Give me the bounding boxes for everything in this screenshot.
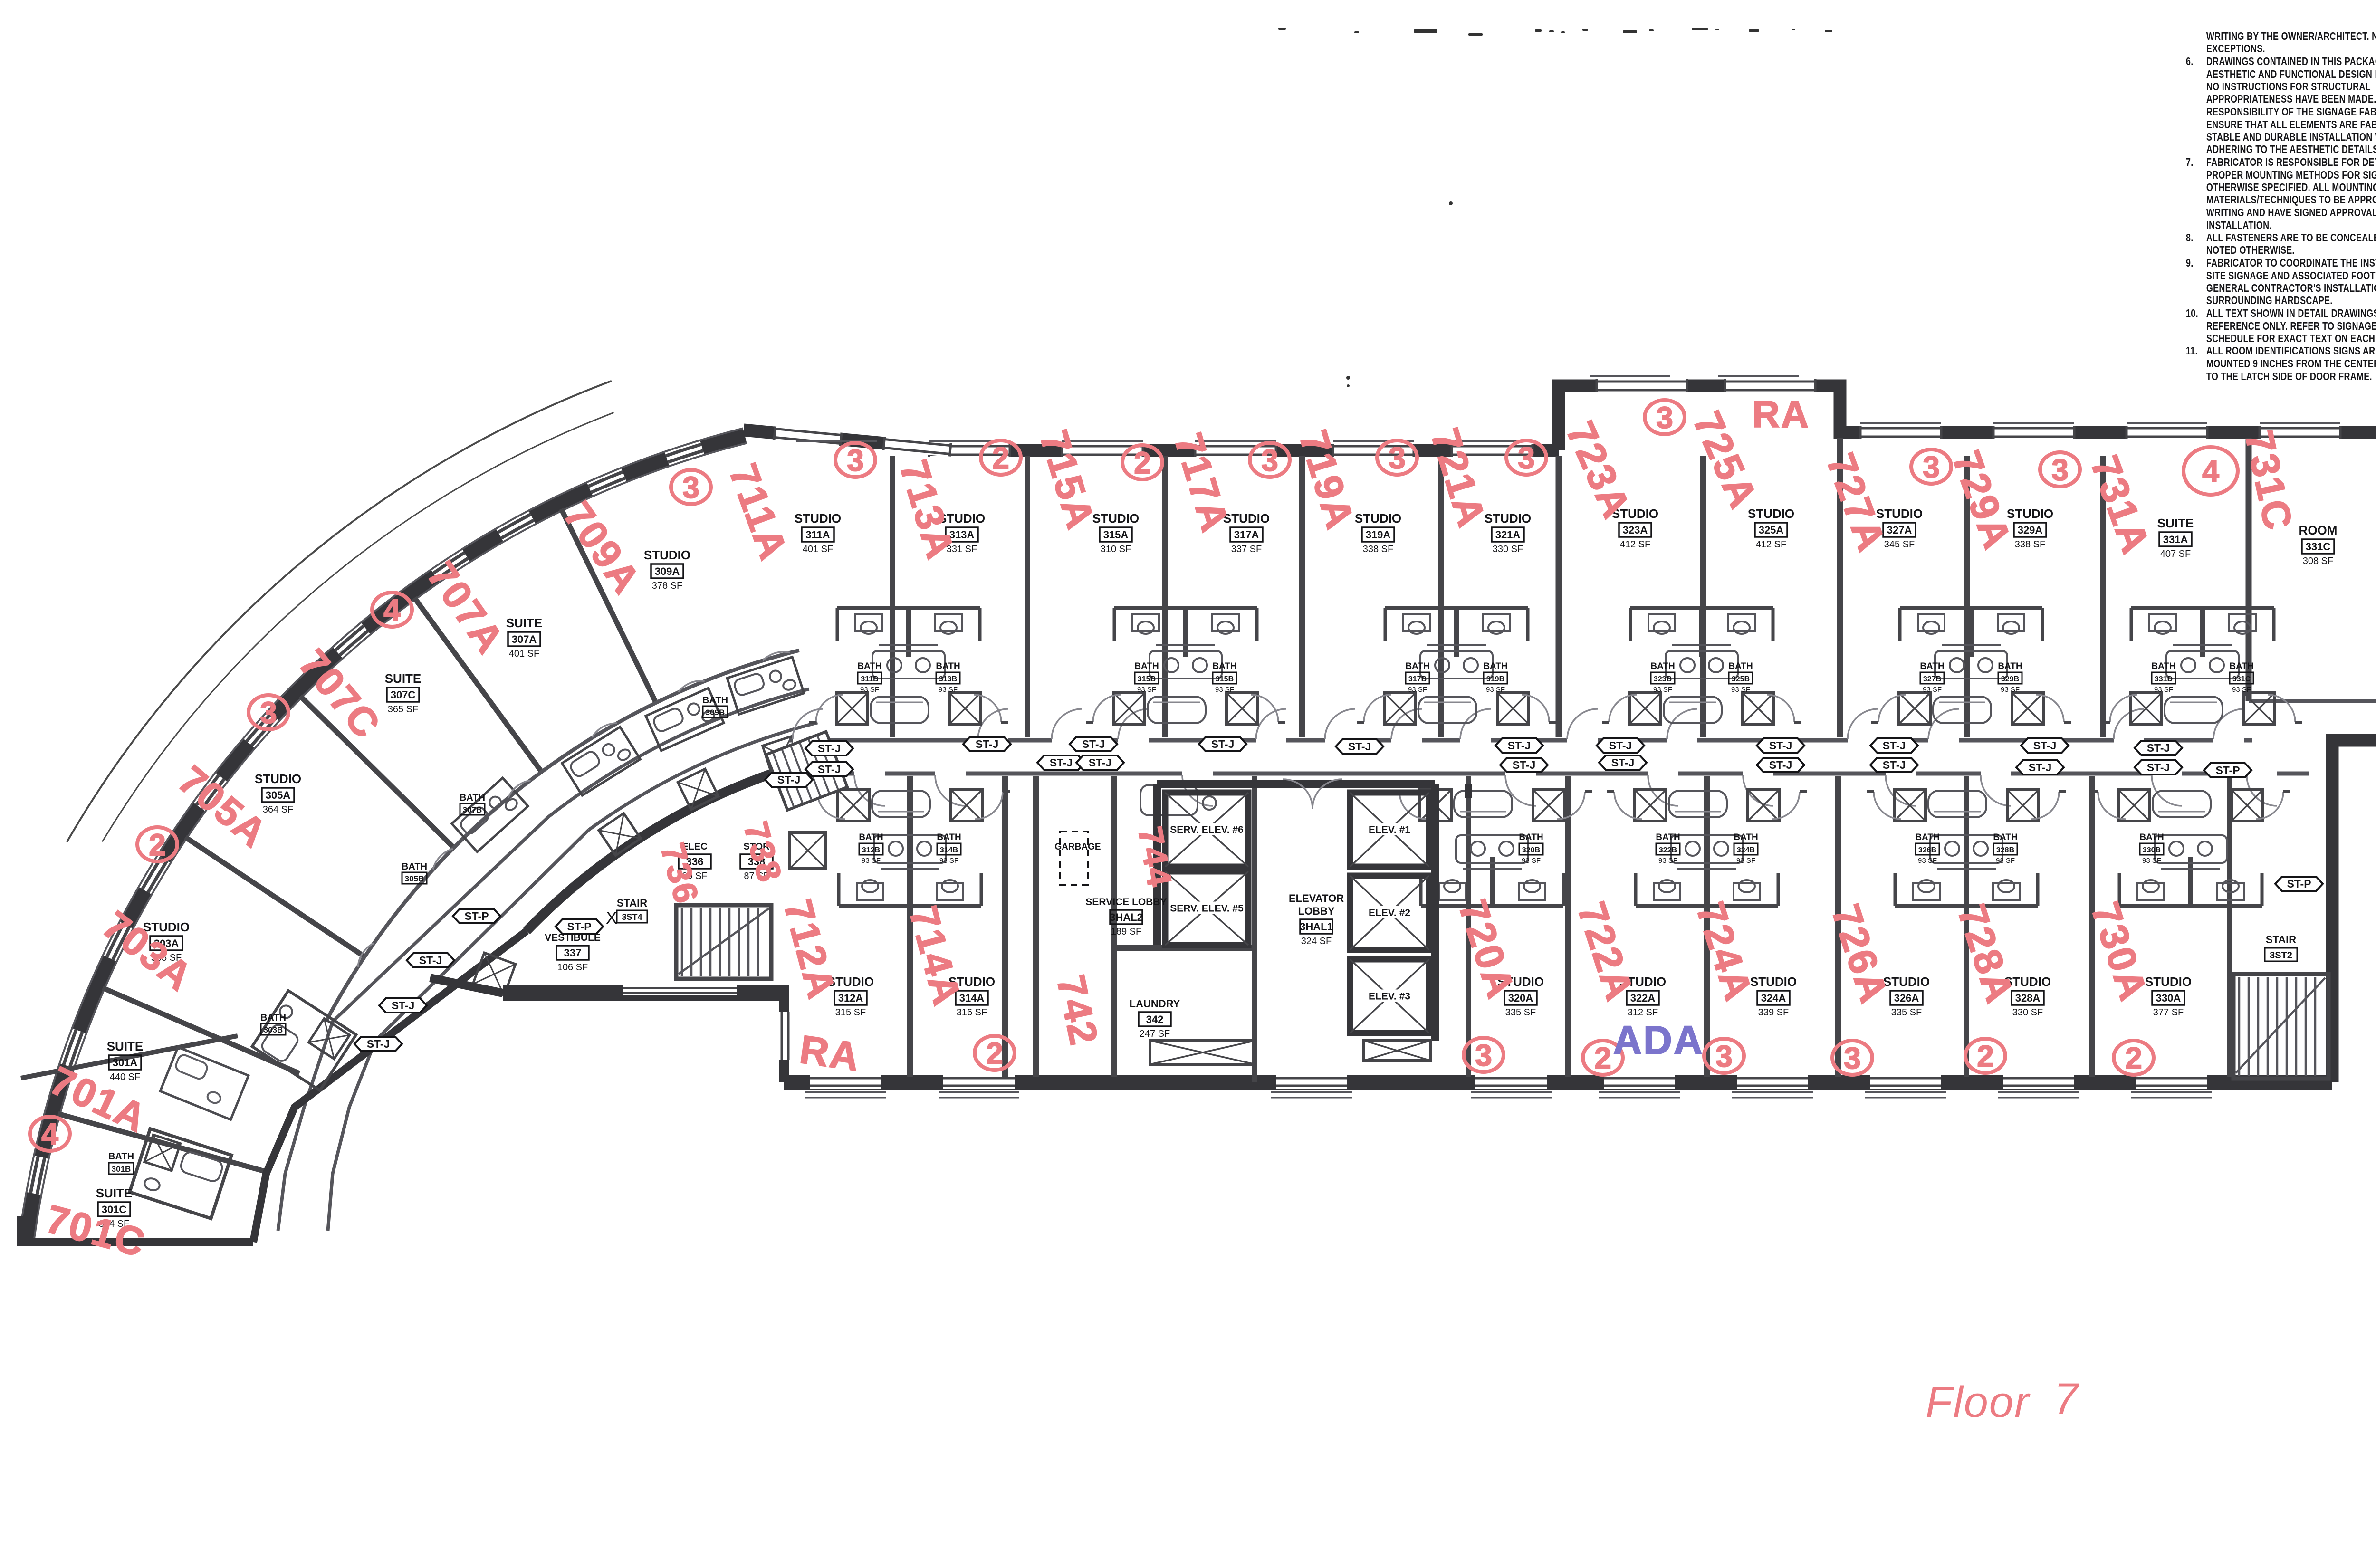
svg-text:BATH: BATH xyxy=(936,661,960,671)
svg-text:ENSURE THAT ALL ELEMENTS ARE F: ENSURE THAT ALL ELEMENTS ARE FABRICATE xyxy=(2206,119,2376,131)
svg-text:315B: 315B xyxy=(1216,675,1234,683)
svg-text:93 SF: 93 SF xyxy=(1923,686,1942,694)
svg-text:LOBBY: LOBBY xyxy=(1298,905,1335,917)
svg-text:315A: 315A xyxy=(1103,529,1129,541)
svg-text:2: 2 xyxy=(1134,446,1151,480)
svg-text:93 SF: 93 SF xyxy=(862,857,881,865)
svg-text:STAIR: STAIR xyxy=(2266,934,2296,946)
svg-text:NO INSTRUCTIONS FOR STRUCTURAL: NO INSTRUCTIONS FOR STRUCTURAL xyxy=(2206,81,2371,93)
svg-text:ELEVATOR: ELEVATOR xyxy=(1289,892,1344,904)
svg-text:ELEV. #1: ELEV. #1 xyxy=(1369,824,1410,835)
svg-text:OTHERWISE SPECIFIED. ALL MOUN: OTHERWISE SPECIFIED. ALL MOUNTING xyxy=(2206,182,2376,194)
svg-text:STUDIO: STUDIO xyxy=(2007,507,2053,521)
svg-text:325B: 325B xyxy=(1732,675,1750,683)
svg-text:312B: 312B xyxy=(862,846,880,854)
svg-text:93 SF: 93 SF xyxy=(1658,857,1677,865)
svg-text:SUITE: SUITE xyxy=(506,616,543,630)
svg-text:BATH: BATH xyxy=(702,695,728,706)
svg-text:106 SF: 106 SF xyxy=(557,962,588,973)
svg-text:2: 2 xyxy=(2125,1041,2142,1075)
svg-text:331C: 331C xyxy=(2306,541,2331,553)
svg-text:ALL FASTENERS ARE TO BE CONCEA: ALL FASTENERS ARE TO BE CONCEALED UNLE. xyxy=(2206,232,2376,244)
svg-text:330A: 330A xyxy=(2156,992,2181,1004)
svg-text:3: 3 xyxy=(1923,450,1940,484)
svg-text:AESTHETIC AND FUNCTIONAL DESIG: AESTHETIC AND FUNCTIONAL DESIGN INTENT xyxy=(2206,68,2376,81)
svg-text:328B: 328B xyxy=(1996,846,2014,854)
svg-text:2: 2 xyxy=(149,828,166,862)
svg-text:BATH: BATH xyxy=(1650,661,1675,671)
svg-text:4: 4 xyxy=(41,1117,58,1151)
svg-text:9.: 9. xyxy=(2186,257,2194,269)
svg-text:3: 3 xyxy=(1261,443,1278,478)
svg-text:BATH: BATH xyxy=(402,861,427,872)
svg-text:93 SF: 93 SF xyxy=(1918,857,1937,865)
svg-text:SERV. ELEV. #6: SERV. ELEV. #6 xyxy=(1170,824,1244,835)
svg-text:3HAL2: 3HAL2 xyxy=(1110,911,1143,923)
svg-text:338 SF: 338 SF xyxy=(1363,544,1393,555)
svg-text:337: 337 xyxy=(564,947,582,959)
svg-text:93 SF: 93 SF xyxy=(1215,686,1234,694)
svg-text:93 SF: 93 SF xyxy=(2001,686,2020,694)
svg-text:BATH: BATH xyxy=(1405,661,1429,671)
svg-text:378 SF: 378 SF xyxy=(652,581,682,591)
svg-text:313B: 313B xyxy=(939,675,957,683)
svg-text:STABLE AND DURABLE INSTALLATIO: STABLE AND DURABLE INSTALLATION WHILE xyxy=(2206,131,2376,143)
svg-text:3: 3 xyxy=(1844,1041,1861,1075)
svg-text:93 SF: 93 SF xyxy=(939,686,958,694)
svg-text:93 SF: 93 SF xyxy=(2232,686,2251,694)
svg-text:440 SF: 440 SF xyxy=(110,1072,140,1082)
svg-text:3ST2: 3ST2 xyxy=(2270,950,2292,961)
svg-text:BATH: BATH xyxy=(1915,832,1939,842)
svg-text:ELEV. #2: ELEV. #2 xyxy=(1369,908,1410,918)
svg-text:3: 3 xyxy=(1715,1039,1733,1073)
svg-text:BATH: BATH xyxy=(1734,832,1758,842)
svg-text:311A: 311A xyxy=(805,529,830,541)
svg-text:93 SF: 93 SF xyxy=(2154,686,2173,694)
svg-text:GENERAL CONTRACTOR'S INSTALLAT: GENERAL CONTRACTOR'S INSTALLATION OF T xyxy=(2206,282,2376,295)
svg-text:301A: 301A xyxy=(113,1057,138,1069)
svg-text:BATH: BATH xyxy=(1920,661,1944,671)
svg-text:189 SF: 189 SF xyxy=(1111,927,1141,937)
svg-text:315 SF: 315 SF xyxy=(835,1007,866,1018)
svg-text:310 SF: 310 SF xyxy=(1101,544,1131,555)
svg-text:301B: 301B xyxy=(112,1165,131,1174)
svg-text:RA: RA xyxy=(797,1027,863,1080)
svg-text:330 SF: 330 SF xyxy=(2012,1007,2043,1018)
svg-text:WRITING BY THE OWNER/ARCHITECT: WRITING BY THE OWNER/ARCHITECT. NO xyxy=(2206,30,2376,43)
svg-text:BATH: BATH xyxy=(1212,661,1236,671)
svg-text:3ST4: 3ST4 xyxy=(622,912,642,922)
svg-text:247 SF: 247 SF xyxy=(1140,1029,1170,1039)
svg-text:ALL ROOM IDENTIFICATIONS SIGNS: ALL ROOM IDENTIFICATIONS SIGNS ARE TO BI xyxy=(2206,345,2376,357)
svg-text:303B: 303B xyxy=(264,1025,283,1034)
svg-text:335 SF: 335 SF xyxy=(1891,1007,1922,1018)
svg-text:ADA: ADA xyxy=(1613,1018,1704,1062)
svg-text:401 SF: 401 SF xyxy=(509,649,539,659)
svg-text:323B: 323B xyxy=(1654,675,1672,683)
svg-text:PROPER MOUNTING METHODS FOR SI: PROPER MOUNTING METHODS FOR SIGNS UI xyxy=(2206,169,2376,182)
svg-text:SERVICE LOBBY: SERVICE LOBBY xyxy=(1085,897,1167,908)
svg-text:3: 3 xyxy=(682,470,699,505)
svg-text:311B: 311B xyxy=(861,675,878,683)
svg-text:2: 2 xyxy=(1594,1041,1611,1075)
svg-text:BATH: BATH xyxy=(2229,661,2253,671)
svg-text:324B: 324B xyxy=(1737,846,1755,854)
svg-text:309B: 309B xyxy=(706,708,725,717)
svg-text:319B: 319B xyxy=(1486,675,1504,683)
svg-text:11.: 11. xyxy=(2186,345,2198,357)
svg-text:93 SF: 93 SF xyxy=(1408,686,1427,694)
svg-text:BATH: BATH xyxy=(859,832,883,842)
svg-text:REFERENCE ONLY. REFER TO SIGN: REFERENCE ONLY. REFER TO SIGNAGE MESSA xyxy=(2206,320,2376,333)
svg-text:BATH: BATH xyxy=(1998,661,2022,671)
svg-text:APPROPRIATENESS HAVE BEEN MADE: APPROPRIATENESS HAVE BEEN MADE. IT IS T xyxy=(2206,93,2376,105)
svg-text:308 SF: 308 SF xyxy=(2303,556,2333,566)
svg-text:320B: 320B xyxy=(1522,846,1540,854)
svg-text:335 SF: 335 SF xyxy=(1505,1007,1536,1018)
svg-text:MOUNTED 9 INCHES FROM THE CENT: MOUNTED 9 INCHES FROM THE CENTER OF T xyxy=(2206,358,2376,370)
svg-text:BATH: BATH xyxy=(1519,832,1543,842)
svg-text:337 SF: 337 SF xyxy=(1231,544,1262,555)
svg-text:319A: 319A xyxy=(1366,529,1391,541)
svg-text:327B: 327B xyxy=(1923,675,1941,683)
svg-text:6.: 6. xyxy=(2186,56,2194,68)
svg-text:326B: 326B xyxy=(1918,846,1936,854)
svg-text:STAIR: STAIR xyxy=(617,897,647,909)
svg-text:4: 4 xyxy=(2202,454,2219,488)
svg-text:3: 3 xyxy=(1518,441,1535,475)
svg-text:BATH: BATH xyxy=(857,661,881,671)
svg-text:STUDIO: STUDIO xyxy=(255,772,301,786)
svg-text:LAUNDRY: LAUNDRY xyxy=(1130,998,1180,1010)
svg-text:10.: 10. xyxy=(2186,307,2198,320)
svg-text:93 SF: 93 SF xyxy=(1653,686,1672,694)
svg-text:331D: 331D xyxy=(2155,675,2173,683)
svg-text:STUDIO: STUDIO xyxy=(795,511,841,526)
svg-text:314B: 314B xyxy=(940,846,958,854)
svg-text:326A: 326A xyxy=(1894,992,1919,1004)
svg-text:3: 3 xyxy=(1389,441,1406,475)
svg-text:329B: 329B xyxy=(2001,675,2019,683)
svg-text:3: 3 xyxy=(260,696,277,730)
svg-text:3: 3 xyxy=(847,443,864,478)
svg-text:FABRICATOR IS RESPONSIBLE FOR: FABRICATOR IS RESPONSIBLE FOR DETERMIN. xyxy=(2206,156,2376,169)
svg-text:INSTALLATION.: INSTALLATION. xyxy=(2206,220,2272,232)
svg-text:3: 3 xyxy=(1475,1038,1492,1072)
svg-text:317B: 317B xyxy=(1408,675,1427,683)
svg-text:93 SF: 93 SF xyxy=(1137,686,1156,694)
svg-text:7: 7 xyxy=(2054,1375,2079,1423)
svg-text:WRITING AND HAVE SIGNED APPROV: WRITING AND HAVE SIGNED APPROVAL PRIO xyxy=(2206,207,2376,219)
svg-text:324A: 324A xyxy=(1761,992,1786,1004)
svg-text:BATH: BATH xyxy=(2151,661,2175,671)
svg-text:BATH: BATH xyxy=(108,1151,134,1162)
svg-text:316 SF: 316 SF xyxy=(957,1007,987,1018)
svg-text:325A: 325A xyxy=(1759,524,1784,536)
svg-text:322B: 322B xyxy=(1659,846,1677,854)
svg-text:2: 2 xyxy=(1977,1039,1994,1073)
svg-text:93 SF: 93 SF xyxy=(939,857,958,865)
svg-text:307A: 307A xyxy=(512,633,537,645)
svg-text:BATH: BATH xyxy=(1483,661,1507,671)
svg-text:SUITE: SUITE xyxy=(107,1039,144,1053)
svg-text:312A: 312A xyxy=(838,992,863,1004)
svg-text:BATH: BATH xyxy=(1993,832,2017,842)
svg-text:SITE SIGNAGE AND ASSOCIATED FO: SITE SIGNAGE AND ASSOCIATED FOOTINGS W xyxy=(2206,270,2376,282)
svg-text:307B: 307B xyxy=(463,805,482,814)
svg-text:412 SF: 412 SF xyxy=(1620,539,1650,550)
svg-text:BATH: BATH xyxy=(1728,661,1753,671)
svg-text:7.: 7. xyxy=(2186,156,2194,169)
svg-text:342: 342 xyxy=(1146,1013,1164,1025)
svg-text:321A: 321A xyxy=(1495,529,1521,541)
svg-text:307C: 307C xyxy=(391,689,416,701)
svg-text:401 SF: 401 SF xyxy=(803,544,833,555)
svg-text:SUITE: SUITE xyxy=(96,1186,133,1200)
svg-text:DRAWINGS CONTAINED IN THIS PAC: DRAWINGS CONTAINED IN THIS PACKAGE AR xyxy=(2206,56,2376,68)
svg-text:93 SF: 93 SF xyxy=(1736,857,1755,865)
svg-text:3: 3 xyxy=(2051,453,2069,487)
svg-text:STUDIO: STUDIO xyxy=(644,548,690,562)
svg-text:331C: 331C xyxy=(2232,675,2251,683)
svg-text:MATERIALS/TECHNIQUES TO BE APP: MATERIALS/TECHNIQUES TO BE APPROVED II xyxy=(2206,194,2376,206)
svg-text:93 SF: 93 SF xyxy=(860,686,879,694)
svg-text:323A: 323A xyxy=(1623,524,1648,536)
svg-text:BATH: BATH xyxy=(2139,832,2164,842)
svg-text:FABRICATOR TO COORDINATE THE I: FABRICATOR TO COORDINATE THE INSTALLAT xyxy=(2206,257,2376,269)
svg-text:93 SF: 93 SF xyxy=(1522,857,1541,865)
svg-text:407 SF: 407 SF xyxy=(2160,549,2191,559)
svg-text:3HAL1: 3HAL1 xyxy=(1300,921,1333,933)
svg-text:TO THE LATCH SIDE OF DOOR FRAM: TO THE LATCH SIDE OF DOOR FRAME. xyxy=(2206,371,2372,383)
svg-text:377 SF: 377 SF xyxy=(2153,1007,2184,1018)
svg-text:324 SF: 324 SF xyxy=(1301,936,1332,947)
svg-text:SURROUNDING HARDSCAPE.: SURROUNDING HARDSCAPE. xyxy=(2206,295,2333,307)
svg-text:8.: 8. xyxy=(2186,232,2194,244)
svg-text:93 SF: 93 SF xyxy=(1996,857,2015,865)
svg-text:ADHERING TO THE AESTHETIC DETA: ADHERING TO THE AESTHETIC DETAILS INDIC. xyxy=(2206,143,2376,156)
svg-text:BATH: BATH xyxy=(1656,832,1680,842)
svg-text:331A: 331A xyxy=(2163,534,2188,545)
svg-text:SERV. ELEV. #5: SERV. ELEV. #5 xyxy=(1170,903,1244,914)
svg-text:329A: 329A xyxy=(2018,524,2043,536)
svg-text:NOTED OTHERWISE.: NOTED OTHERWISE. xyxy=(2206,244,2295,257)
svg-text:309A: 309A xyxy=(655,565,680,577)
svg-text:BATH: BATH xyxy=(260,1013,286,1023)
svg-text:330 SF: 330 SF xyxy=(1493,544,1523,555)
svg-text:BATH: BATH xyxy=(937,832,961,842)
svg-text:X: X xyxy=(606,908,617,927)
svg-text:93 SF: 93 SF xyxy=(1731,686,1750,694)
svg-text:330B: 330B xyxy=(2143,846,2161,854)
svg-text:412 SF: 412 SF xyxy=(1756,539,1786,550)
svg-text:Floor: Floor xyxy=(1926,1378,2031,1426)
svg-text:SUITE: SUITE xyxy=(2157,516,2194,530)
svg-text:ALL TEXT SHOWN IN DETAIL DRAWI: ALL TEXT SHOWN IN DETAIL DRAWINGS IS FO xyxy=(2206,307,2376,320)
svg-text:4: 4 xyxy=(383,593,401,627)
svg-text:312 SF: 312 SF xyxy=(1628,1007,1658,1018)
svg-text:317A: 317A xyxy=(1234,529,1259,541)
svg-text:305B: 305B xyxy=(405,874,424,883)
svg-text:ELEV. #3: ELEV. #3 xyxy=(1369,991,1410,1002)
svg-text:2: 2 xyxy=(992,441,1009,475)
svg-text:305A: 305A xyxy=(266,789,291,801)
svg-text:EXCEPTIONS.: EXCEPTIONS. xyxy=(2206,43,2265,55)
svg-text:3: 3 xyxy=(1656,401,1673,435)
svg-text:SCHEDULE FOR EXACT TEXT ON EAC: SCHEDULE FOR EXACT TEXT ON EACH SIGN. xyxy=(2206,333,2376,345)
svg-text:ROOM: ROOM xyxy=(2299,523,2338,537)
svg-text:STUDIO: STUDIO xyxy=(1748,507,1794,521)
svg-text:BATH: BATH xyxy=(460,793,485,803)
svg-text:364 SF: 364 SF xyxy=(263,804,293,815)
svg-text:RESPONSIBILITY OF THE SIGNAGE: RESPONSIBILITY OF THE SIGNAGE FABRICATO xyxy=(2206,106,2376,118)
svg-text:RA: RA xyxy=(1752,393,1810,435)
svg-text:93 SF: 93 SF xyxy=(1486,686,1505,694)
svg-text:315B: 315B xyxy=(1138,675,1156,683)
svg-text:93 SF: 93 SF xyxy=(2142,857,2161,865)
svg-text:338 SF: 338 SF xyxy=(2015,539,2045,550)
svg-text:GARBAGE: GARBAGE xyxy=(1054,842,1101,852)
svg-text:365 SF: 365 SF xyxy=(388,704,418,715)
svg-text:339 SF: 339 SF xyxy=(1758,1007,1789,1018)
svg-text:SUITE: SUITE xyxy=(385,671,422,686)
svg-text:BATH: BATH xyxy=(1134,661,1159,671)
svg-text:2: 2 xyxy=(986,1036,1003,1071)
